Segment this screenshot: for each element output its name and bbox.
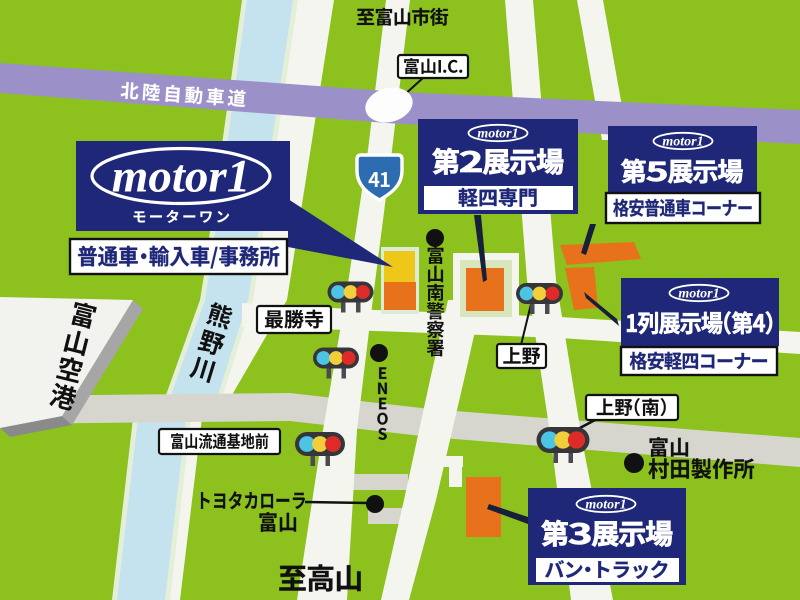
svg-text:motor1: motor1 xyxy=(112,151,250,203)
svg-text:motor1: motor1 xyxy=(662,135,703,150)
svg-text:motor1: motor1 xyxy=(678,287,719,302)
svg-text:motor1: motor1 xyxy=(477,127,518,142)
svg-text:motor1: motor1 xyxy=(585,498,626,513)
